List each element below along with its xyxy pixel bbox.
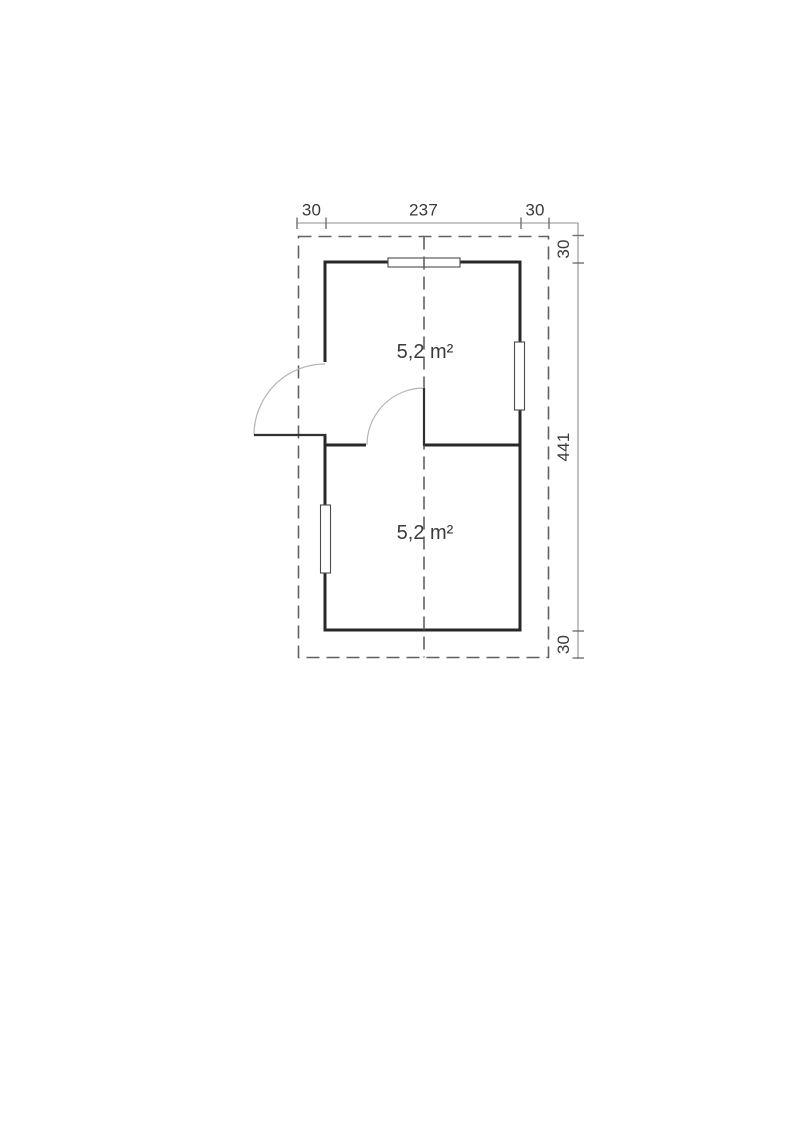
exterior-door-opening bbox=[320, 362, 330, 435]
dim-label-right-bottom-overhang: 30 bbox=[554, 635, 573, 654]
door-leaves bbox=[254, 388, 424, 446]
dim-label-right-height: 441 bbox=[554, 433, 573, 462]
door-swing-arcs bbox=[254, 364, 424, 445]
room-area-label-bottom: 5,2 m² bbox=[397, 522, 454, 544]
window-right-wall bbox=[515, 342, 525, 410]
floor-plan-drawing: 30 237 30 30 441 30 bbox=[0, 0, 800, 1132]
dimension-chain-line bbox=[297, 223, 578, 659]
room-area-label-top: 5,2 m² bbox=[397, 341, 454, 363]
dimension-ticks bbox=[297, 218, 584, 659]
room-labels: 5,2 m² 5,2 m² bbox=[397, 341, 454, 544]
floor-plan-page: 30 237 30 30 441 30 bbox=[0, 0, 800, 1132]
dim-label-right-top-overhang: 30 bbox=[554, 239, 573, 258]
dim-label-top-width: 237 bbox=[409, 201, 438, 220]
exterior-door-swing-arc bbox=[254, 364, 325, 435]
window-left-wall bbox=[321, 505, 331, 573]
interior-door-swing-arc bbox=[367, 388, 424, 445]
dimension-lines bbox=[297, 223, 578, 659]
dim-label-top-right-overhang: 30 bbox=[525, 201, 544, 220]
dim-label-top-left-overhang: 30 bbox=[302, 201, 321, 220]
dimension-labels: 30 237 30 30 441 30 bbox=[302, 201, 573, 655]
